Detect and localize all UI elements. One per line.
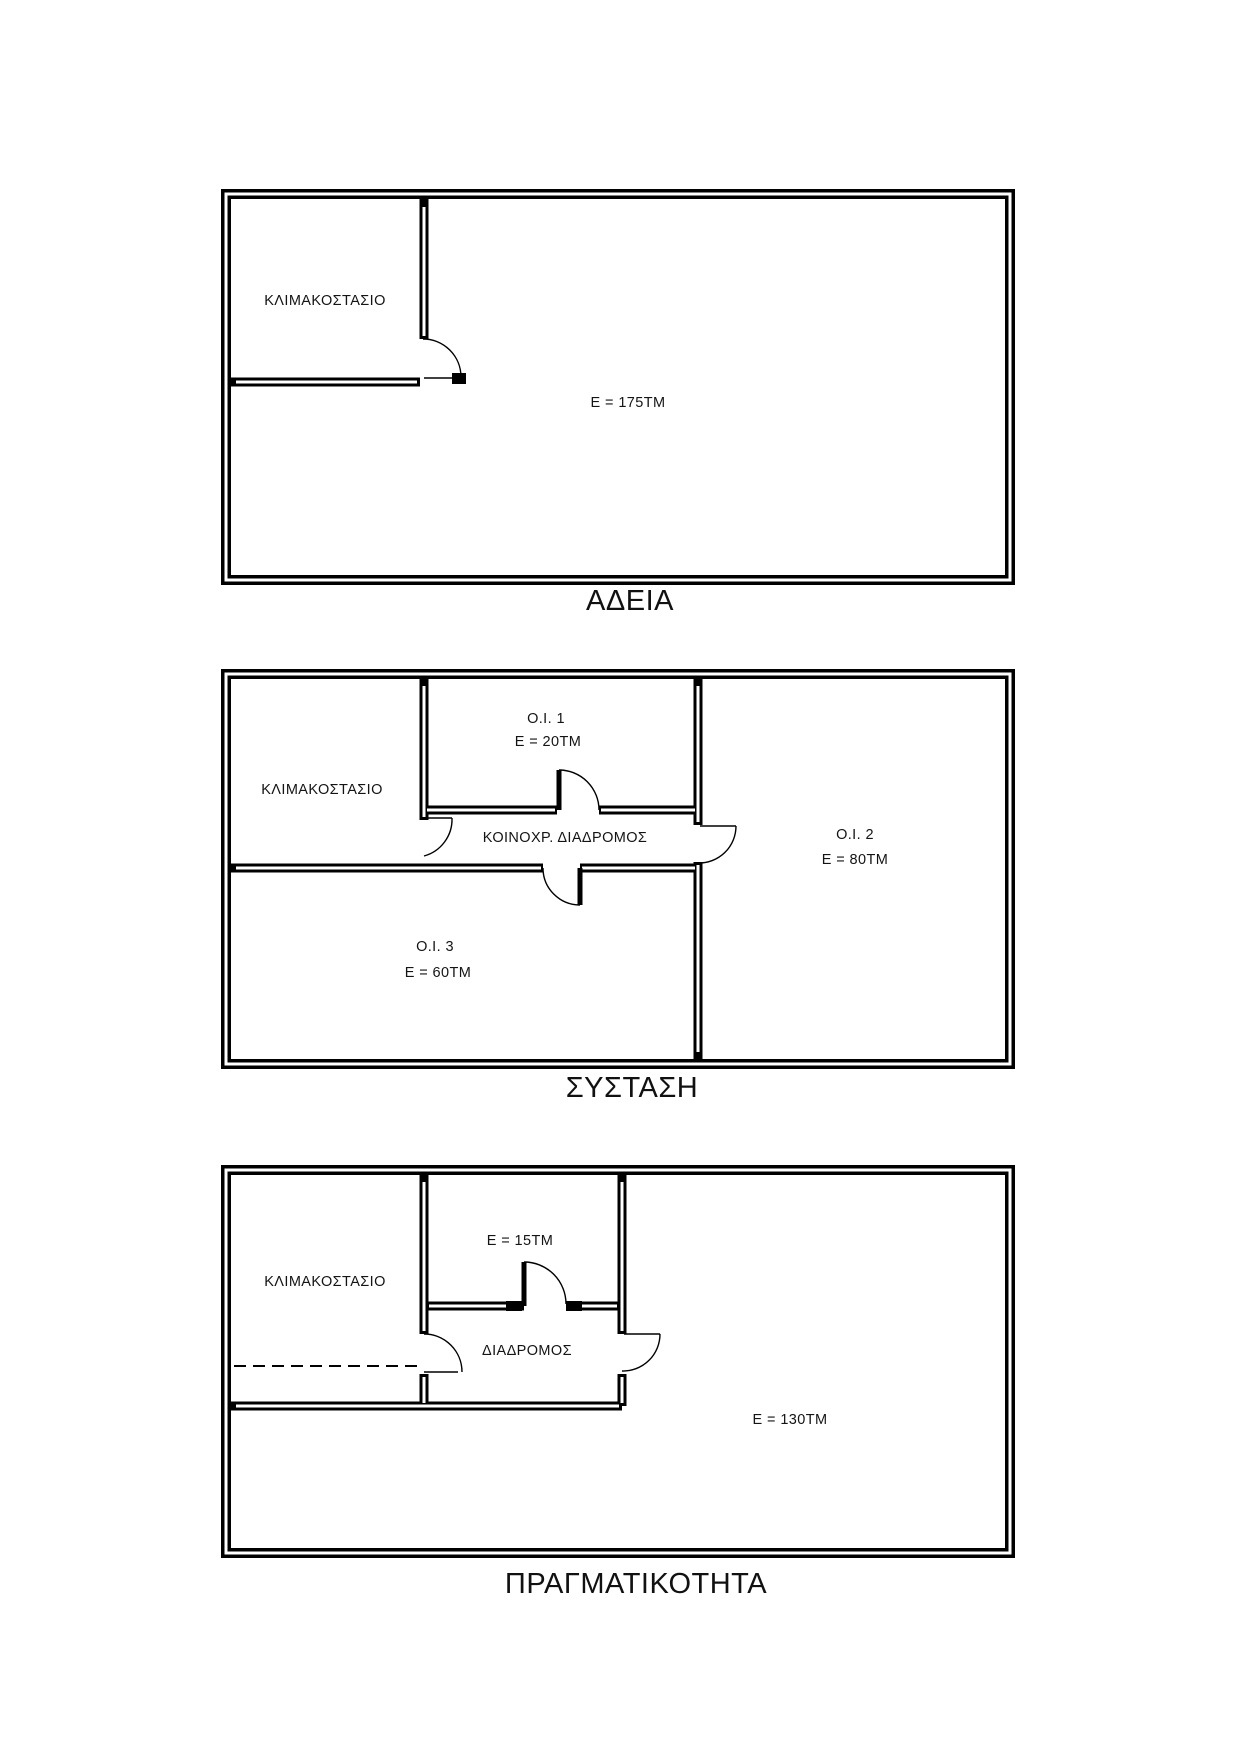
plan2-inner-walls-cavity — [236, 686, 698, 1052]
plan1-main-area-label: E = 175TM — [591, 395, 666, 411]
plan2-stairwell-label: ΚΛΙΜΑΚΟΣΤΑΣΙΟ — [261, 782, 383, 798]
plan2-unit3-area-label: E = 60TM — [405, 965, 471, 981]
plan3-small-room-door-arc — [524, 1262, 566, 1304]
plan3-small-room-door-jamb-left — [506, 1301, 522, 1311]
plan2-title: ΣΥΣΤΑΣΗ — [566, 1072, 698, 1104]
plan2-unit2-door-arc — [698, 826, 736, 863]
plan3-main-area-label: E = 130TM — [753, 1412, 828, 1428]
plan3-title: ΠΡΑΓΜΑΤΙΚΟΤΗΤΑ — [505, 1568, 767, 1600]
plan2-stairwell-door-arc — [424, 818, 452, 856]
plan1-outer-wall-cavity — [226, 194, 1010, 580]
plan2-unit1-label: O.I. 1 — [527, 711, 565, 727]
plan2-unit1-door-arc — [559, 770, 599, 810]
floor-plans-svg: ΚΛΙΜΑΚΟΣΤΑΣΙΟ E = 175TM ΑΔΕΙΑ ΚΛΙΜΑΚΟΣΤΑ… — [0, 0, 1240, 1755]
plan2-unit3-door-arc — [543, 868, 580, 905]
plan1-stairwell-label: ΚΛΙΜΑΚΟΣΤΑΣΙΟ — [264, 293, 386, 309]
plan3-stairwell-door-arc — [424, 1334, 462, 1372]
floor-plan-document: ΚΛΙΜΑΚΟΣΤΑΣΙΟ E = 175TM ΑΔΕΙΑ ΚΛΙΜΑΚΟΣΤΑ… — [0, 0, 1240, 1755]
plan2-corridor-label: ΚΟΙΝΟΧΡ. ΔΙΑΔΡΟΜΟΣ — [483, 830, 648, 846]
plan3-small-room-area-label: E = 15TM — [487, 1233, 553, 1249]
plan2-unit3-label: O.I. 3 — [416, 939, 454, 955]
plan3-main-room-door-arc — [622, 1334, 660, 1371]
plan2-unit1-area-label: E = 20TM — [515, 734, 581, 750]
plan-adeia: ΚΛΙΜΑΚΟΣΤΑΣΙΟ E = 175TM ΑΔΕΙΑ — [226, 194, 1010, 617]
plan-systasi: ΚΛΙΜΑΚΟΣΤΑΣΙΟ O.I. 1 E = 20TM ΚΟΙΝΟΧΡ. Δ… — [226, 674, 1010, 1104]
plan1-title: ΑΔΕΙΑ — [586, 585, 674, 617]
plan3-stairwell-label: ΚΛΙΜΑΚΟΣΤΑΣΙΟ — [264, 1274, 386, 1290]
plan-pragmatikotita: ΚΛΙΜΑΚΟΣΤΑΣΙΟ E = 15TM ΔΙΑΔΡΟΜΟΣ E = 130… — [226, 1170, 1010, 1600]
plan1-door-jamb — [452, 373, 466, 384]
plan3-corridor-label: ΔΙΑΔΡΟΜΟΣ — [482, 1343, 572, 1359]
plan1-stairwell-door-arc — [423, 339, 461, 377]
plan1-outer-wall — [226, 194, 1010, 580]
plan2-unit2-label: O.I. 2 — [836, 827, 874, 843]
plan3-small-room-door-jamb-right — [566, 1301, 582, 1311]
plan1-inner-walls — [231, 199, 424, 382]
plan2-unit2-area-label: E = 80TM — [822, 852, 888, 868]
